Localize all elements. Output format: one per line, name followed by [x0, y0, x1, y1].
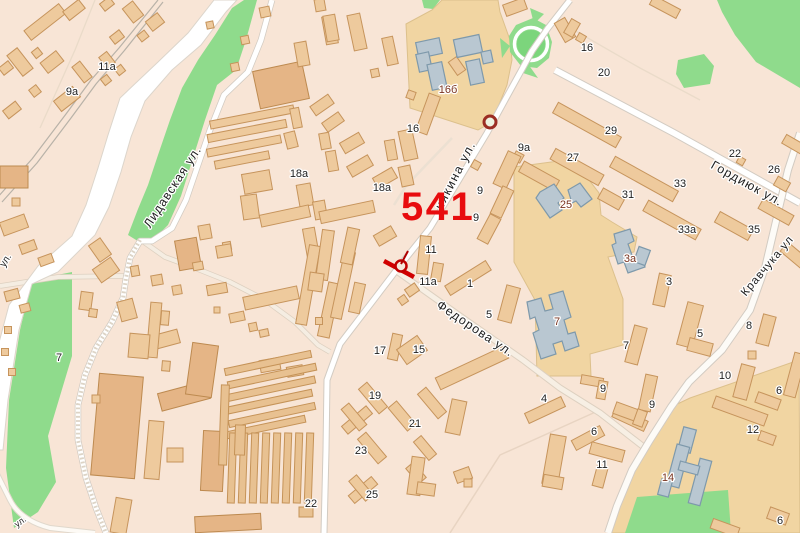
svg-text:35: 35	[748, 224, 760, 236]
svg-text:18а: 18а	[290, 168, 309, 180]
svg-text:3: 3	[666, 276, 672, 288]
svg-text:1: 1	[467, 278, 473, 290]
svg-text:6: 6	[777, 515, 783, 527]
svg-text:6: 6	[591, 426, 597, 438]
svg-text:22: 22	[305, 498, 317, 510]
svg-text:31: 31	[622, 189, 634, 201]
svg-text:12: 12	[747, 424, 759, 436]
svg-text:33а: 33а	[678, 224, 697, 236]
svg-text:26: 26	[768, 164, 780, 176]
svg-text:7: 7	[56, 352, 62, 364]
svg-text:16б: 16б	[439, 84, 458, 96]
svg-text:9: 9	[600, 383, 606, 395]
svg-text:3а: 3а	[624, 253, 637, 265]
svg-text:15: 15	[413, 344, 425, 356]
svg-text:9а: 9а	[66, 86, 79, 98]
svg-text:5: 5	[697, 328, 703, 340]
svg-text:8: 8	[746, 320, 752, 332]
svg-text:25: 25	[366, 489, 378, 501]
svg-text:6: 6	[776, 385, 782, 397]
svg-text:9: 9	[649, 399, 655, 411]
svg-text:11: 11	[596, 459, 607, 471]
svg-text:14: 14	[662, 472, 674, 484]
svg-text:21: 21	[409, 418, 421, 430]
svg-text:27: 27	[567, 152, 579, 164]
svg-text:33: 33	[674, 178, 686, 190]
svg-text:17: 17	[374, 345, 386, 357]
svg-text:19: 19	[369, 390, 381, 402]
svg-text:23: 23	[355, 445, 367, 457]
svg-text:25: 25	[560, 199, 572, 211]
svg-text:11а: 11а	[419, 276, 437, 288]
svg-text:5: 5	[486, 309, 492, 321]
svg-text:9а: 9а	[518, 142, 531, 154]
svg-text:16: 16	[581, 42, 593, 54]
svg-text:7: 7	[623, 340, 629, 352]
svg-text:11а: 11а	[98, 61, 116, 73]
svg-text:10: 10	[719, 370, 731, 382]
svg-text:7: 7	[554, 316, 560, 328]
svg-text:4: 4	[541, 393, 547, 405]
svg-text:9: 9	[477, 185, 483, 197]
svg-text:22: 22	[729, 148, 741, 160]
svg-text:20: 20	[598, 67, 610, 79]
svg-text:11: 11	[425, 244, 436, 256]
svg-text:18а: 18а	[373, 182, 392, 194]
svg-text:16: 16	[407, 123, 419, 135]
svg-text:541: 541	[401, 185, 475, 229]
svg-text:29: 29	[605, 125, 617, 137]
